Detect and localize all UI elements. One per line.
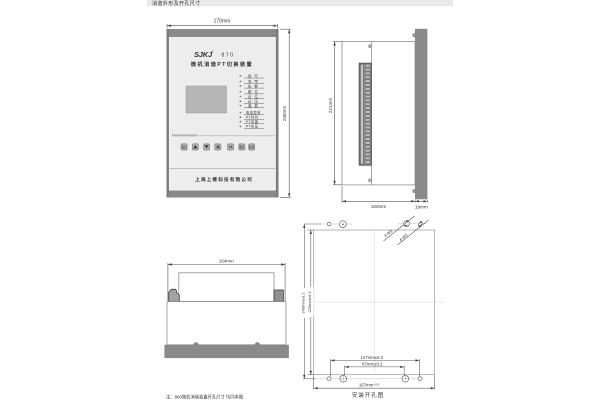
svg-text:870: 870 (222, 53, 235, 59)
svg-text:充电: 充电 (248, 79, 261, 84)
svg-text:电压异常: 电压异常 (246, 110, 261, 115)
svg-text:SJKJ: SJKJ (194, 50, 213, 59)
svg-text:跳位: 跳位 (248, 89, 261, 94)
svg-text:225mm±0.5: 225mm±0.5 (307, 291, 312, 313)
svg-text:100mm: 100mm (371, 204, 386, 209)
svg-text:240mm±0.2: 240mm±0.2 (301, 292, 306, 314)
svg-text:安装开孔图: 安装开孔图 (352, 391, 384, 399)
svg-text:注：860微机消谐装置开孔尺寸 均同本图: 注：860微机消谐装置开孔尺寸 均同本图 (166, 394, 243, 400)
svg-text:PT并列: PT并列 (246, 115, 259, 120)
svg-text:164mm: 164mm (219, 258, 234, 263)
svg-text:复归: 复归 (181, 145, 187, 149)
svg-text:236mm: 236mm (282, 106, 287, 121)
svg-text:告警: 告警 (248, 83, 261, 88)
svg-text:微机消谐PT切换装置: 微机消谐PT切换装置 (190, 60, 253, 68)
svg-text:合位: 合位 (248, 94, 261, 99)
svg-text:运行: 运行 (248, 73, 261, 78)
svg-text:127mm±0.2: 127mm±0.2 (360, 355, 383, 360)
svg-text:消谐外形及开孔尺寸: 消谐外形及开孔尺寸 (152, 0, 201, 7)
svg-text:过压: 过压 (248, 99, 261, 104)
svg-text:上海上继科技有限公司: 上海上继科技有限公司 (195, 176, 253, 183)
svg-text:221mm: 221mm (328, 98, 333, 113)
svg-text:170mm: 170mm (214, 19, 231, 25)
svg-text:PT失压: PT失压 (246, 124, 259, 129)
svg-text:确认: 确认 (239, 145, 245, 149)
svg-text:谐振: 谐振 (248, 103, 261, 108)
svg-text:PT切换: PT切换 (246, 119, 259, 124)
svg-text:19mm: 19mm (415, 204, 428, 209)
svg-text:87mm±0.2: 87mm±0.2 (362, 362, 383, 367)
svg-text:取消: 取消 (249, 145, 255, 149)
